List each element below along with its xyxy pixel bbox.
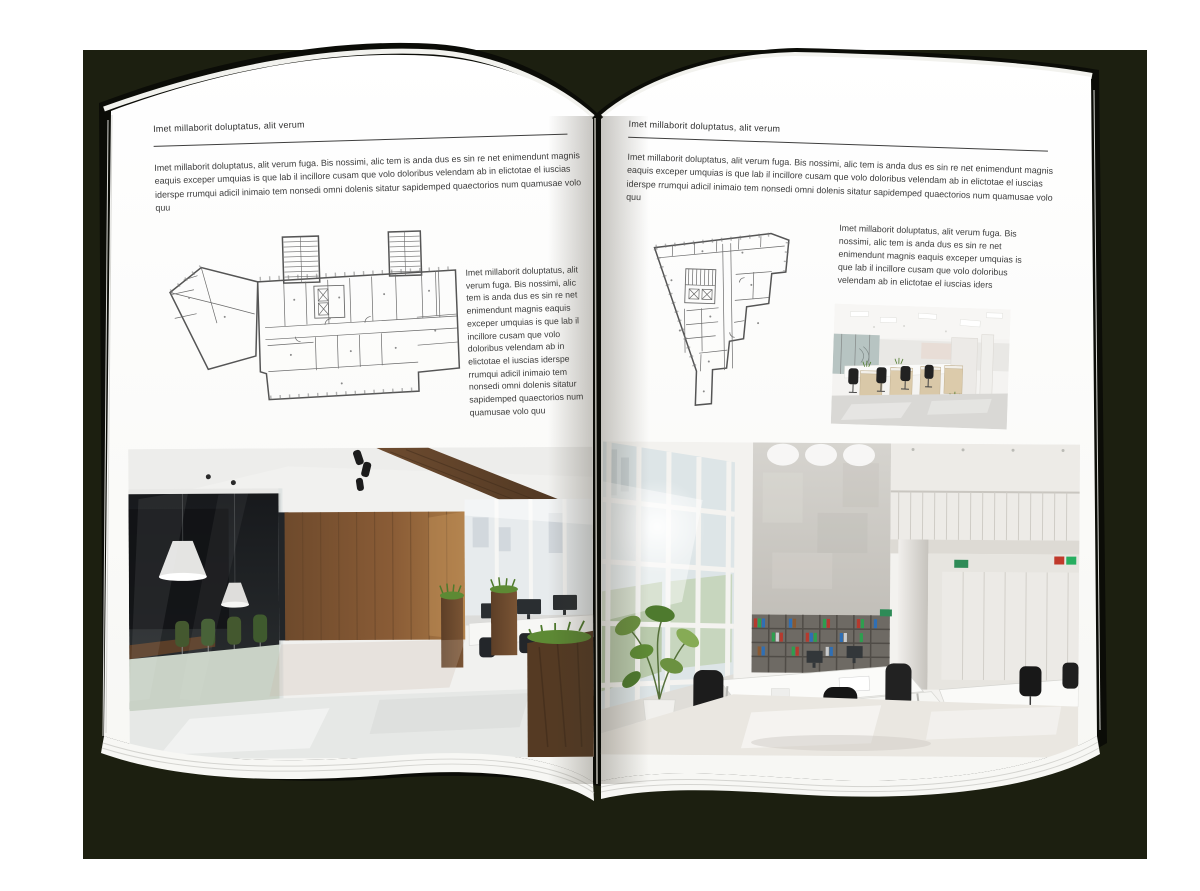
- left-header-rule: [154, 134, 568, 148]
- glass-meeting-room: [128, 488, 283, 711]
- interior-walls: [169, 260, 459, 374]
- plan-markers: [188, 290, 438, 389]
- office-chair: [1062, 663, 1078, 689]
- back-wall-cabinets: [927, 554, 1079, 691]
- safety-sign: [1066, 557, 1076, 565]
- mezzanine: [890, 443, 1080, 554]
- floor-plan-left: [162, 220, 463, 421]
- right-page-title: Imet millaborit doluptatus, alit verum: [628, 119, 780, 134]
- foreground-planter: [527, 621, 594, 757]
- office-photo-small: [831, 304, 1011, 430]
- safety-sign: [1054, 556, 1064, 564]
- right-intro-paragraph: Imet millaborit doluptatus, alit verum f…: [626, 151, 1058, 219]
- left-sidebar-text: Imet millaborit doluptatus, alit verum f…: [465, 263, 591, 419]
- plan-markers: [667, 249, 762, 394]
- concrete-wall: [752, 442, 891, 615]
- left-page-title: Imet millaborit doluptatus, alit verum: [153, 119, 305, 133]
- right-header-rule: [628, 137, 1048, 152]
- wood-wall: [285, 511, 466, 640]
- brochure-mockup-scene: Imet millaborit doluptatus, alit verum I…: [0, 0, 1200, 891]
- left-intro-paragraph: Imet millaborit doluptatus, alit verum f…: [154, 149, 585, 215]
- office-chair: [1019, 666, 1041, 696]
- wall-panel: [921, 343, 952, 360]
- exit-sign: [954, 560, 968, 568]
- right-body-text: Imet millaborit doluptatus, alit verum f…: [837, 222, 1037, 294]
- office-photo-dark: [128, 447, 594, 759]
- window-ticks: [170, 259, 459, 400]
- bookshelf: [751, 608, 891, 673]
- floor-plan-right: [637, 219, 807, 422]
- office-photo-bright: [601, 441, 1080, 757]
